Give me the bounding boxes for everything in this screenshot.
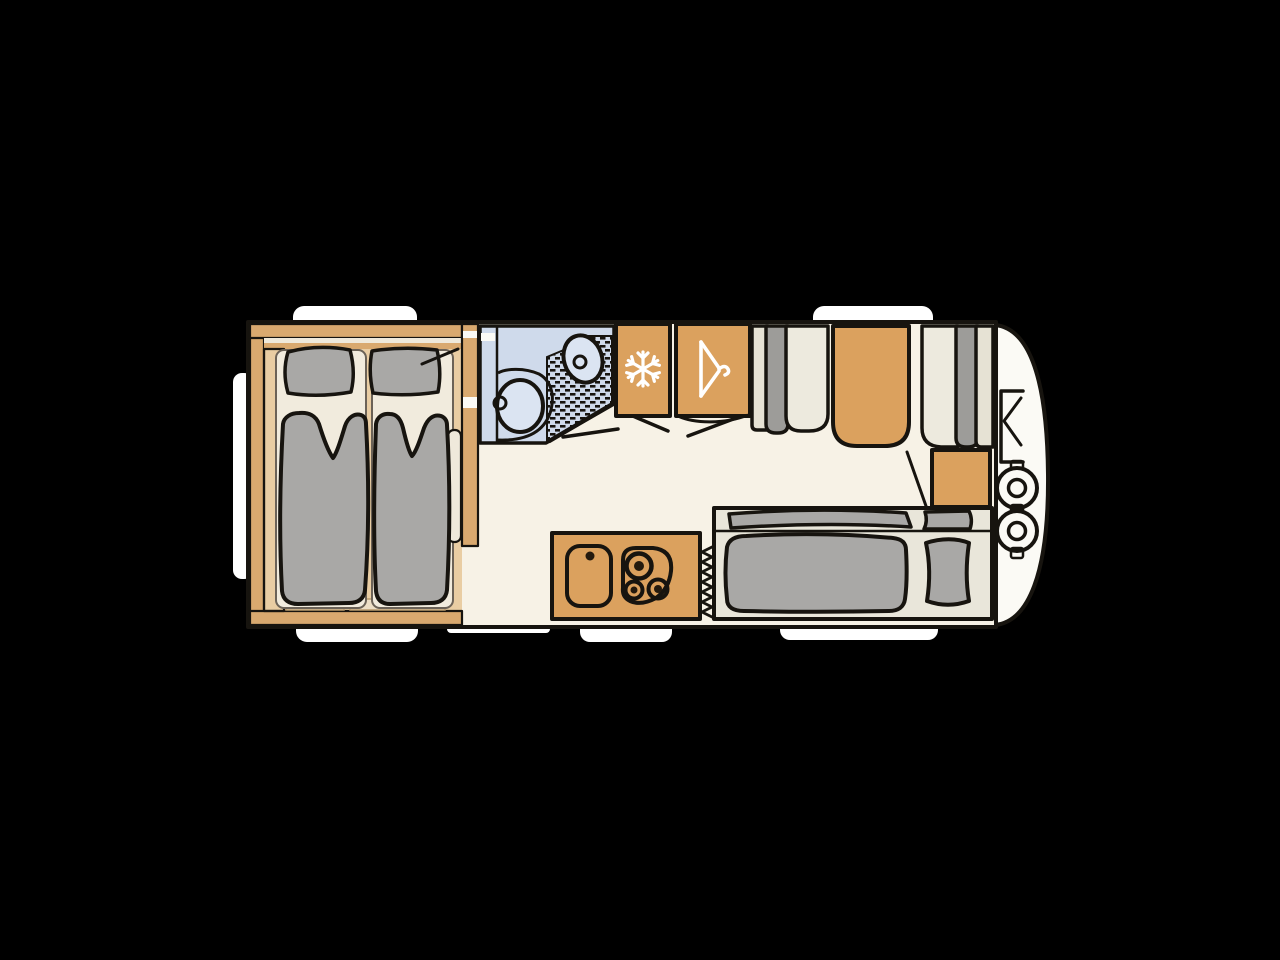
dinette: [752, 326, 993, 447]
kitchen: [552, 533, 700, 619]
hob-burner-small-right-center: [654, 585, 662, 593]
dinette-table: [833, 326, 909, 446]
dinette-seat-right: [922, 326, 958, 447]
lounge-bench: [714, 508, 992, 619]
partition-wall: [462, 324, 478, 546]
wardrobe: [676, 324, 750, 422]
pillow-left: [285, 347, 353, 395]
partition-doorway: [463, 397, 477, 408]
gas-bottle: [997, 511, 1037, 551]
hob-burner-small-left-center: [631, 587, 638, 594]
bench-seat-cushion: [726, 534, 907, 611]
bedroom-wall-bottom: [250, 611, 462, 625]
bedroom-wall-top: [250, 324, 462, 338]
bathroom-door-gap: [481, 333, 495, 341]
bedroom: [250, 324, 462, 625]
fridge: [616, 324, 670, 416]
dinette-seat-left: [786, 326, 828, 431]
partition: [462, 324, 478, 546]
kitchen-tap: [586, 552, 595, 561]
floorplan-svg: [0, 0, 1280, 960]
bedroom-wall-rear: [250, 324, 264, 625]
dinette-seat-right-backrest: [976, 326, 993, 447]
gas-bottle: [997, 468, 1037, 508]
wardrobe-cabinet: [676, 324, 750, 416]
pillow-right: [370, 348, 440, 395]
duvet-left: [280, 413, 368, 604]
bench-back-cushion-long: [729, 510, 911, 528]
bench-pillow: [926, 539, 969, 605]
hob-burner-large-center: [634, 561, 644, 571]
partition-gap: [463, 331, 477, 338]
bench-back-cushion-small: [924, 511, 971, 529]
caravan-floorplan-canvas: [0, 0, 1280, 960]
side-cabinet: [932, 450, 990, 507]
